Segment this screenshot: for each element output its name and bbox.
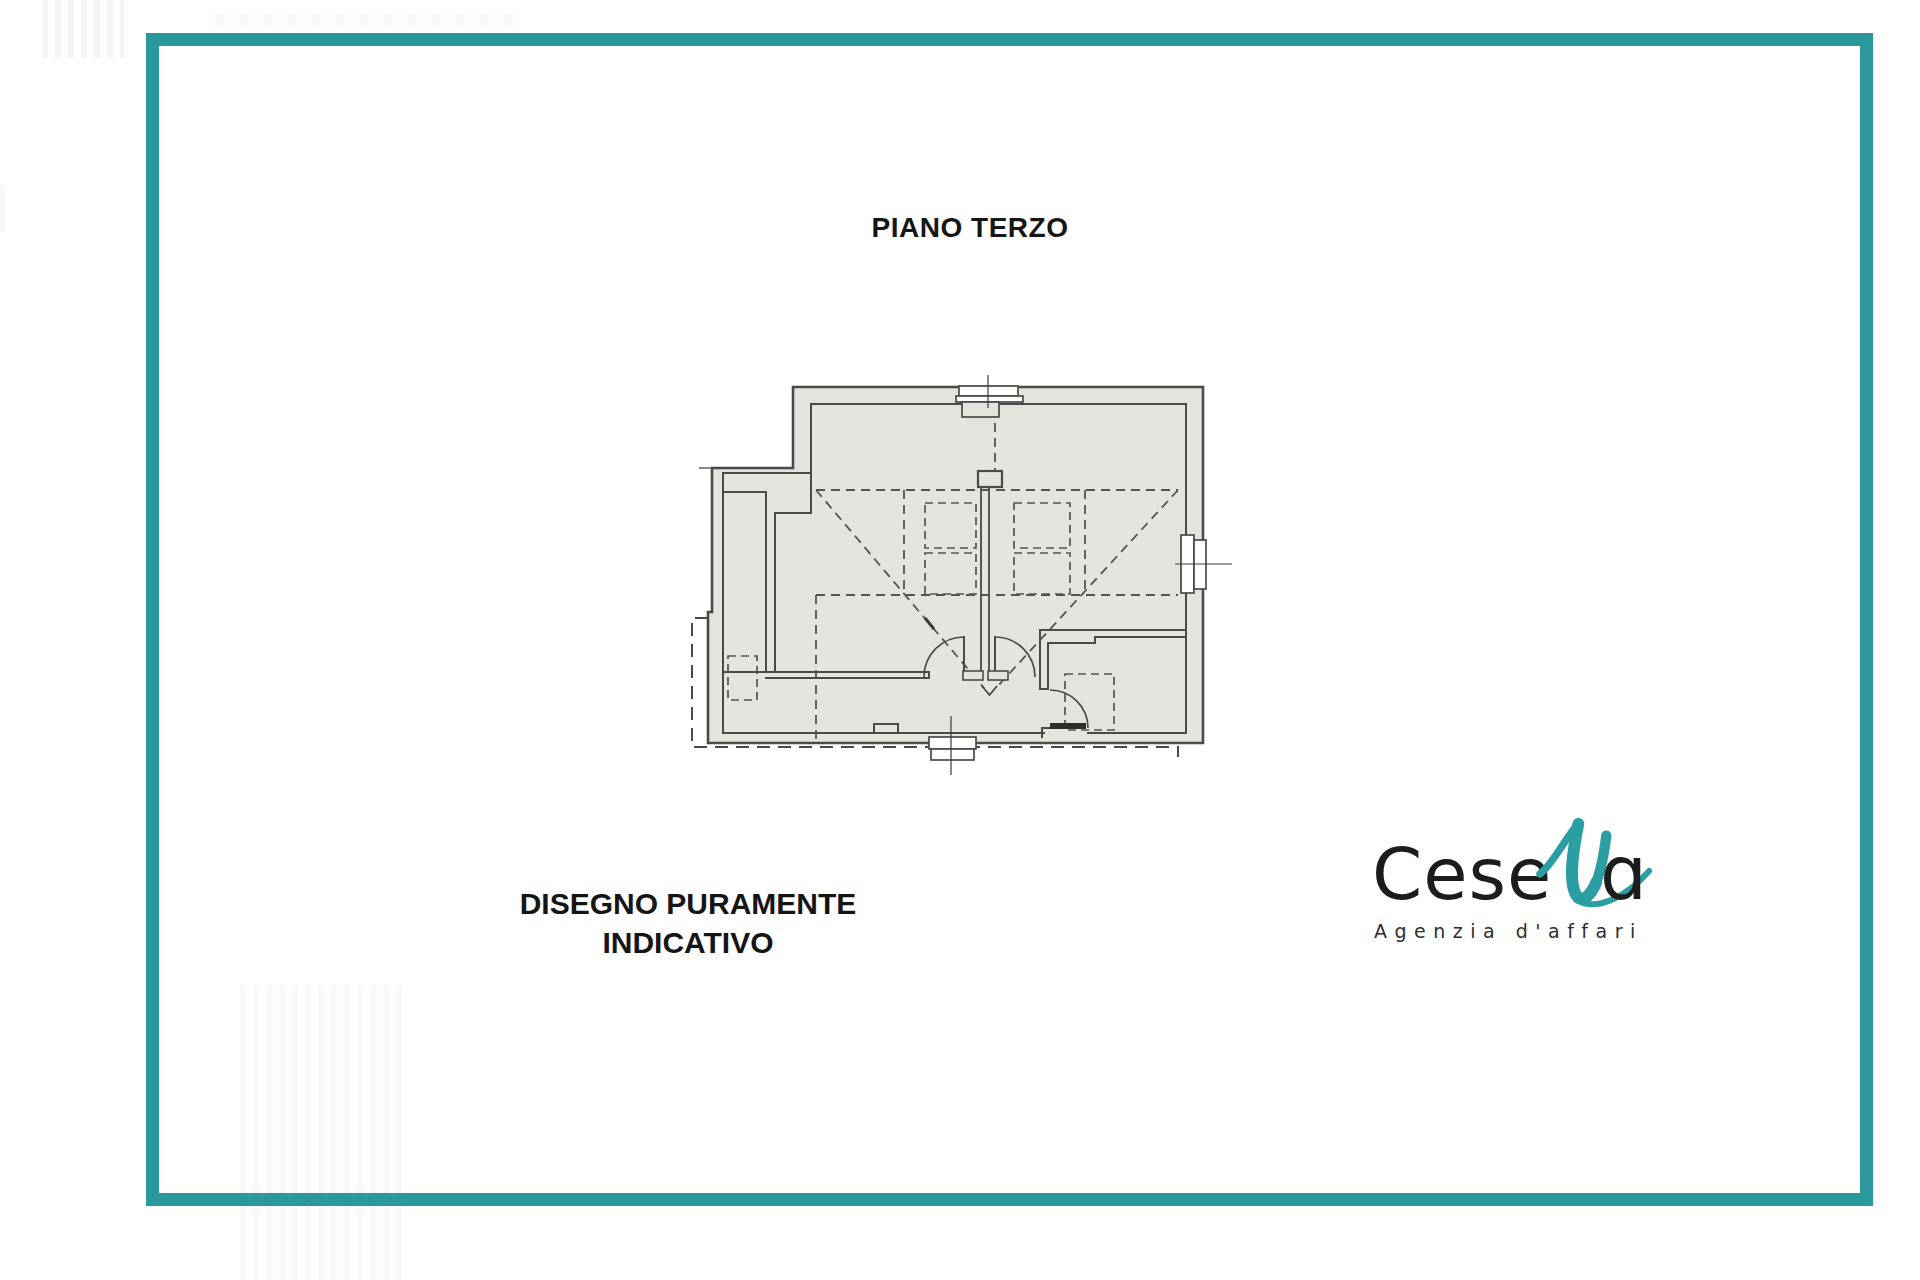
logo-word-start: Cese [1372, 832, 1552, 916]
agency-logo: Cese ɑ Agenzia d'affari [1368, 818, 1688, 948]
watermark-top-dashes [215, 14, 515, 26]
window-right [1175, 535, 1232, 593]
disclaimer-line1: DISEGNO PURAMENTE [488, 884, 888, 923]
logo-tagline: Agenzia d'affari [1374, 920, 1643, 942]
logo-word-end: ɑ [1600, 830, 1647, 916]
building-outline [708, 387, 1203, 743]
watermark-top-left [42, 0, 124, 58]
page: PIANO TERZO [0, 0, 1920, 1280]
floor-plan-drawing [680, 290, 1240, 790]
disclaimer-line2: INDICATIVO [488, 923, 888, 962]
floor-title: PIANO TERZO [820, 212, 1120, 244]
disclaimer-text: DISEGNO PURAMENTE INDICATIVO [488, 884, 888, 962]
watermark-left-edge [0, 186, 9, 232]
